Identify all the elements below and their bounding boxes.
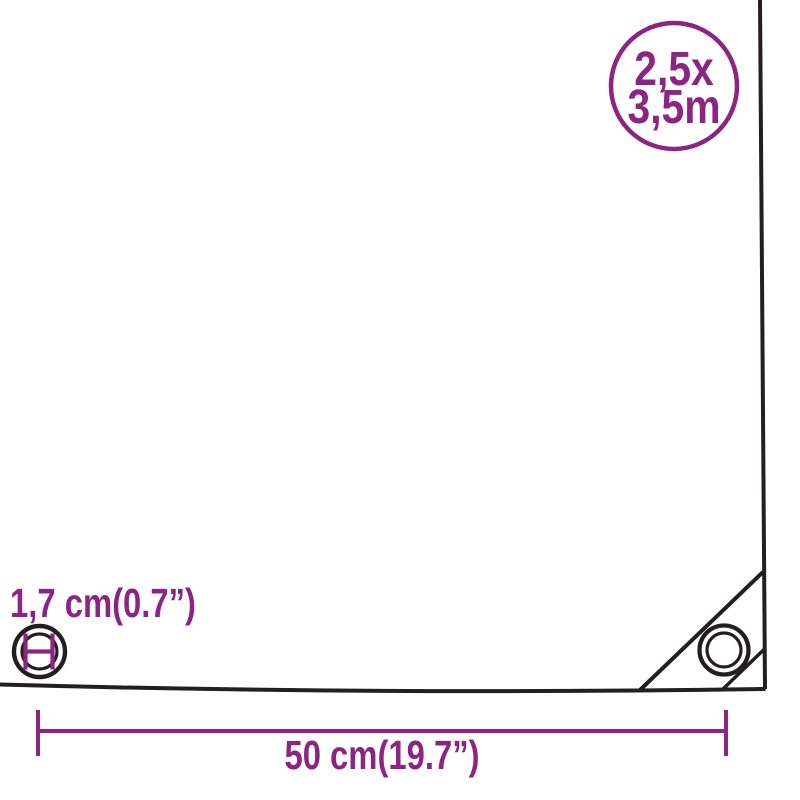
corner-eyelet-icon [700,626,749,675]
corner-fold-line [722,649,765,690]
tarp-right-edge [760,0,765,689]
product-dimension-diagram: 2,5x 3,5m 1,7 cm(0.7”) 50 cm(19.7”) [0,0,800,800]
eyelet-diameter-label: 1,7 cm(0.7”) [10,583,196,624]
tarp-bottom-edge [0,685,766,692]
badge-size-line2: 3,5m [628,84,721,132]
eyelet-diameter-icon [14,626,65,677]
edge-distance-label: 50 cm(19.7”) [284,735,479,776]
corner-reinforcement-seam [640,572,763,690]
corner-eyelet-inner-ring [707,633,741,667]
